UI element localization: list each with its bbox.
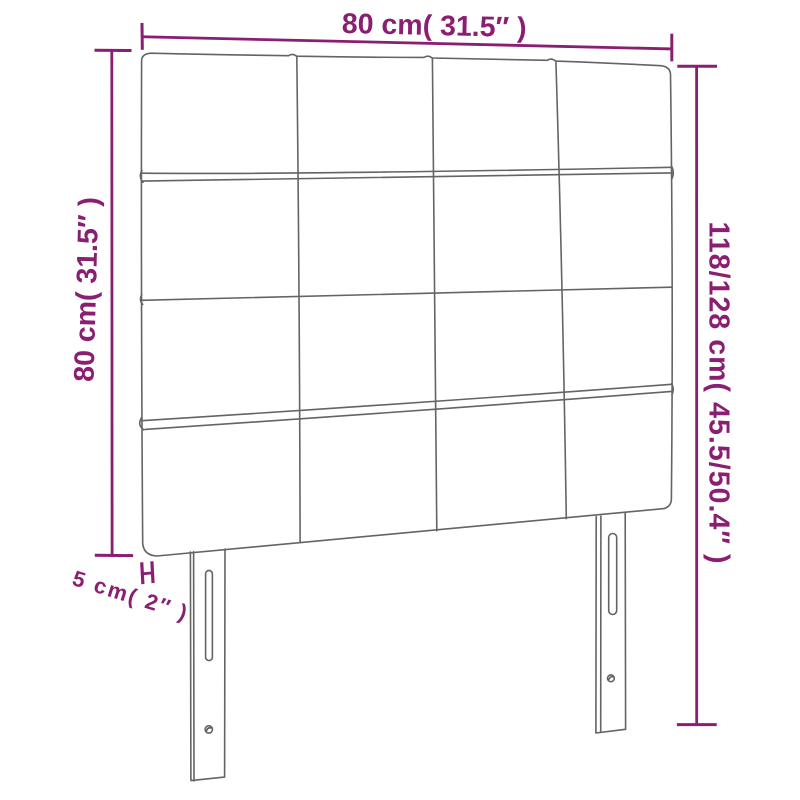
svg-text:80 cm( 31.5″ ): 80 cm( 31.5″ ) [69,197,106,383]
svg-text:80 cm( 31.5″ ): 80 cm( 31.5″ ) [341,8,526,44]
svg-text:118/128 cm( 45.5/50.4″ ): 118/128 cm( 45.5/50.4″ ) [703,222,735,565]
svg-text:5 cm( 2″ ): 5 cm( 2″ ) [69,565,192,625]
